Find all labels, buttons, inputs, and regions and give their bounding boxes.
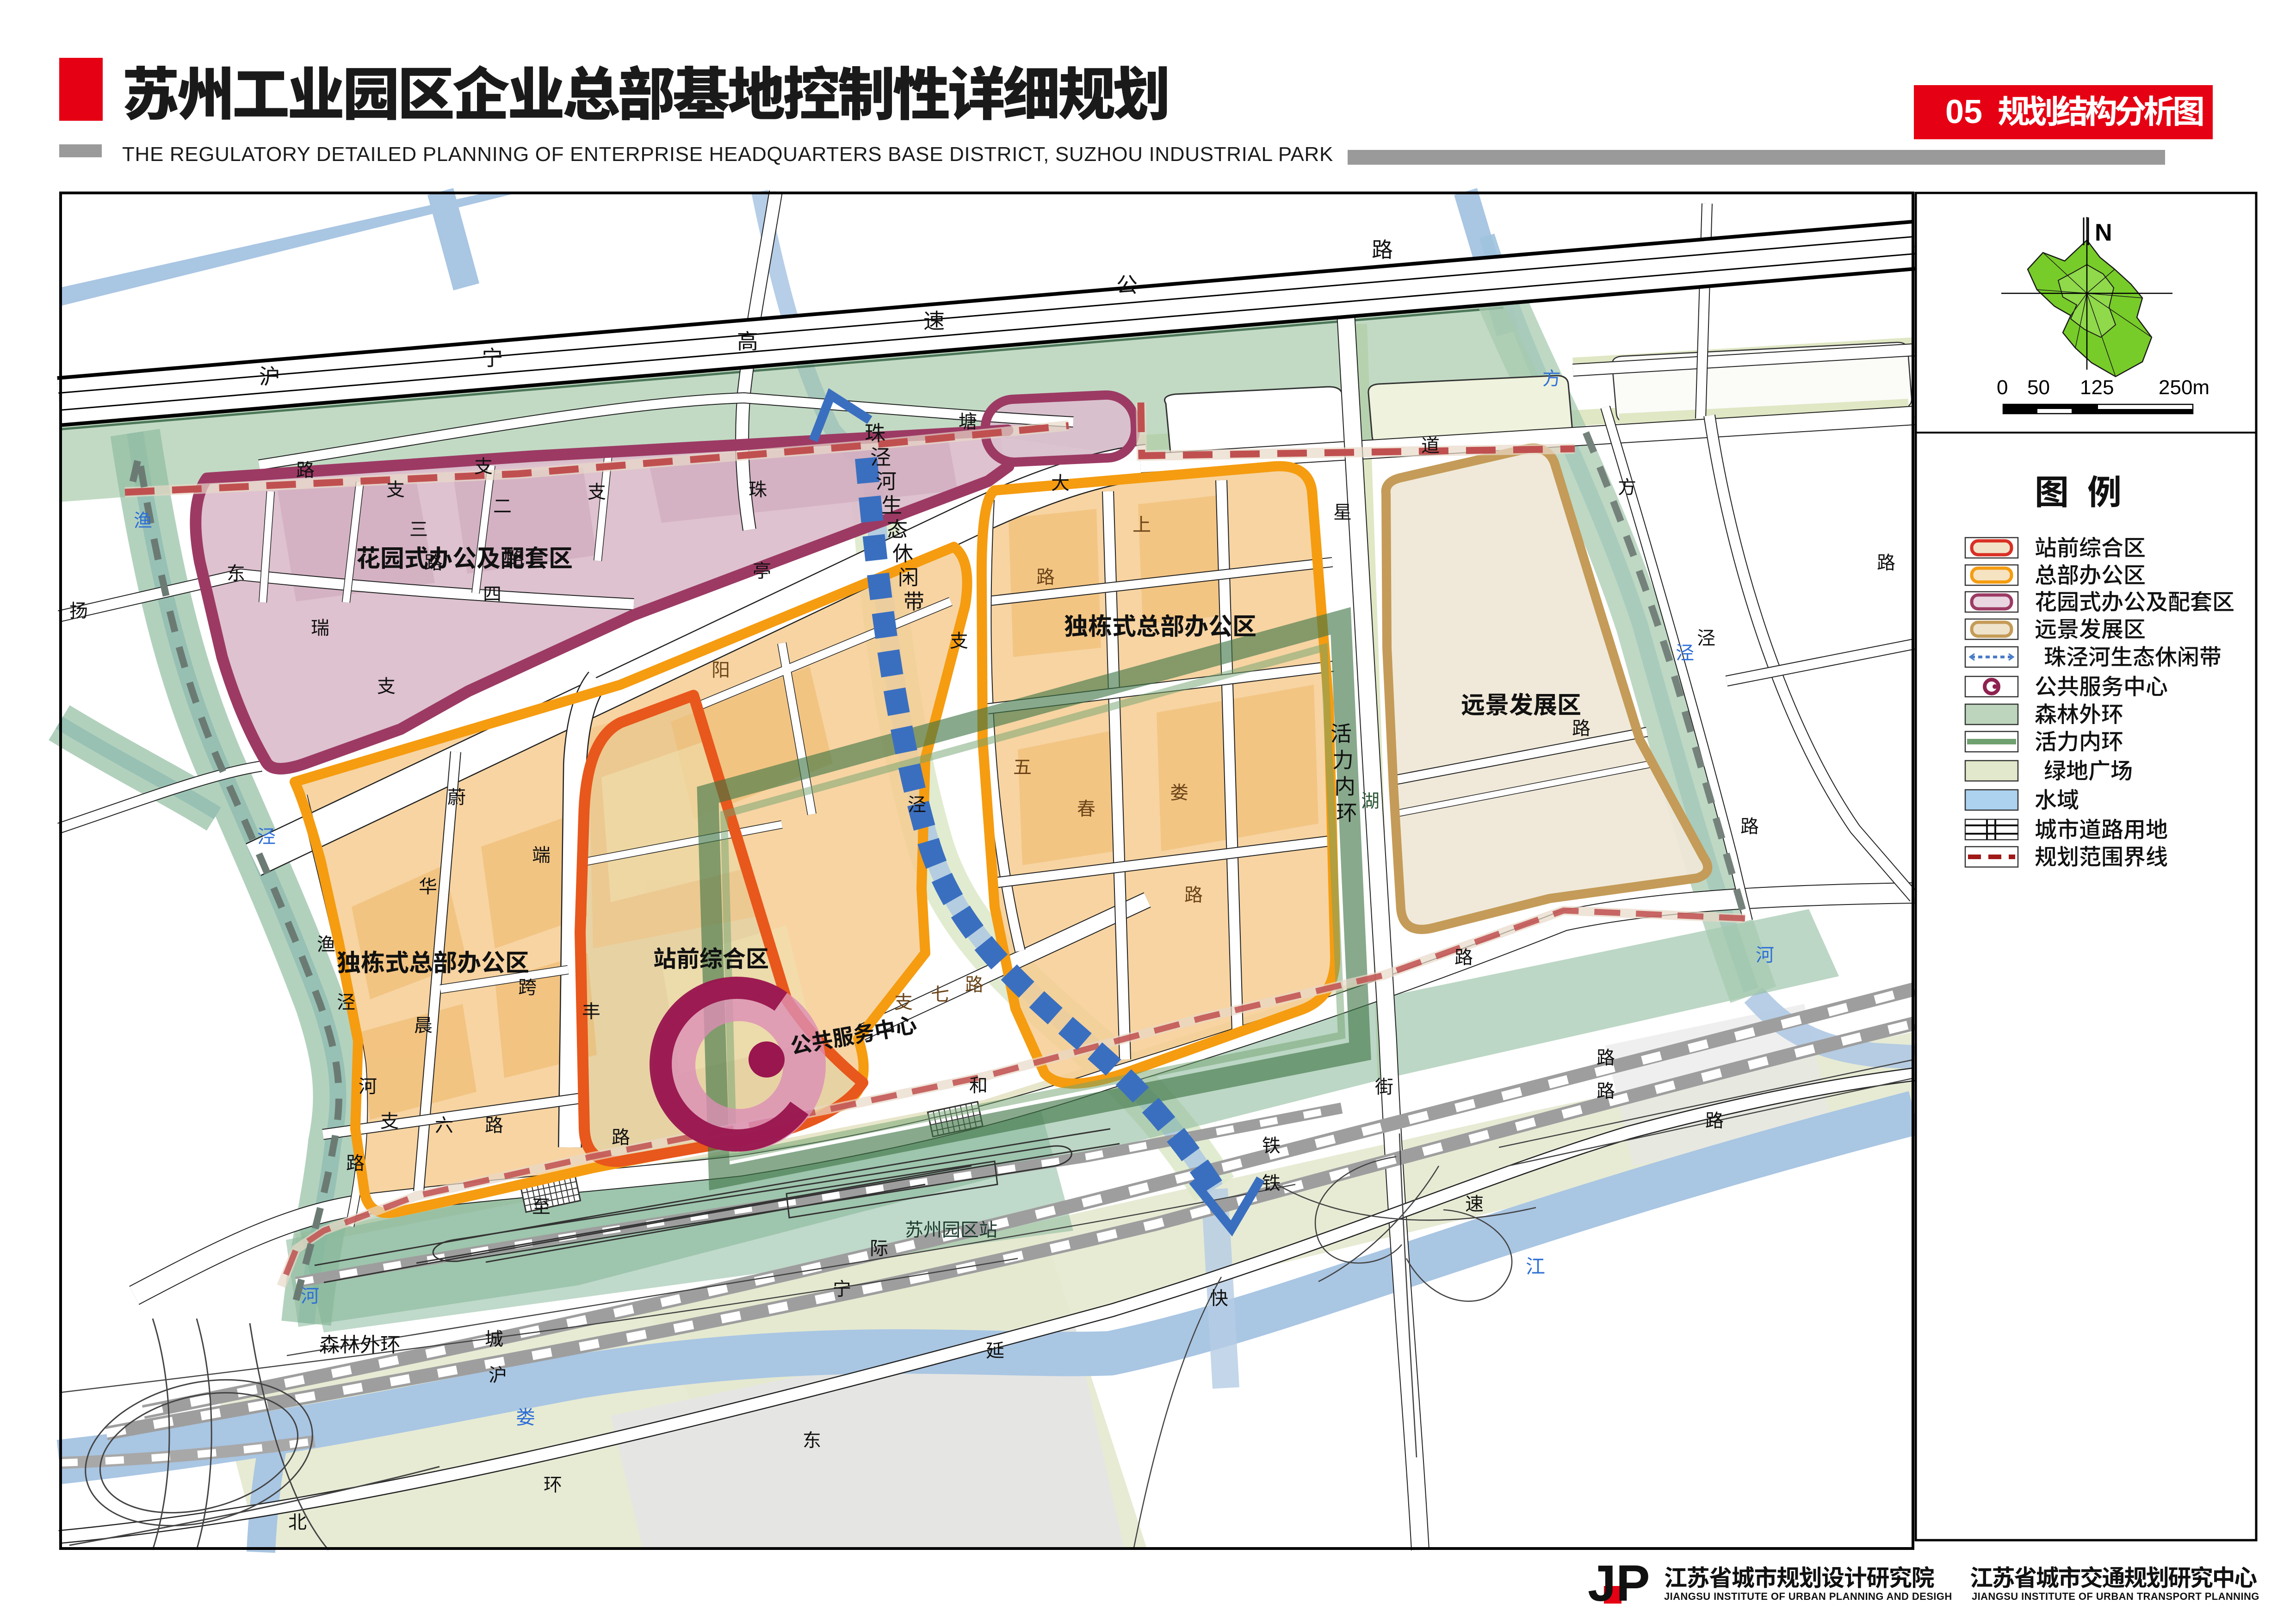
svg-text:50: 50 — [2027, 376, 2050, 399]
svg-text:JP: JP — [1588, 1555, 1650, 1612]
svg-text:JIANGSU INSTITUTE OF URBAN PLA: JIANGSU INSTITUTE OF URBAN PLANNING AND … — [1664, 1591, 1952, 1602]
svg-text:THE REGULATORY DETAILED PLANNI: THE REGULATORY DETAILED PLANNING OF ENTE… — [122, 143, 1333, 166]
svg-text:0: 0 — [1997, 376, 2008, 399]
svg-text:125: 125 — [2080, 376, 2114, 399]
svg-text:250m: 250m — [2159, 376, 2209, 399]
svg-text:N: N — [2095, 219, 2112, 246]
svg-text:JIANGSU INSTITUTE OF URBAN TRA: JIANGSU INSTITUTE OF URBAN TRANSPORT PLA… — [1972, 1591, 2259, 1602]
svg-text:05: 05 — [1945, 93, 1982, 130]
